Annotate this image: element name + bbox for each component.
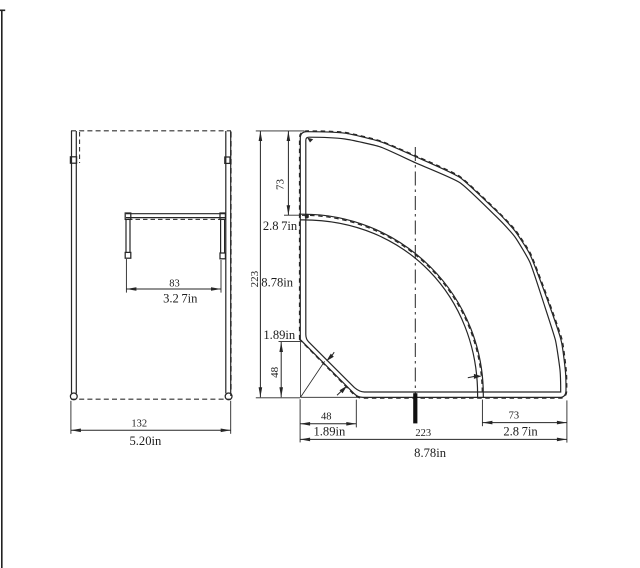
svg-text:48: 48 bbox=[269, 366, 281, 378]
svg-text:223: 223 bbox=[249, 270, 261, 287]
svg-text:223: 223 bbox=[415, 428, 431, 439]
svg-text:83: 83 bbox=[169, 279, 180, 290]
svg-text:48: 48 bbox=[321, 412, 332, 423]
svg-text:8.78in: 8.78in bbox=[414, 446, 447, 460]
svg-text:1.89in: 1.89in bbox=[313, 425, 346, 439]
svg-text:2.8 7in: 2.8 7in bbox=[503, 424, 538, 438]
svg-text:73: 73 bbox=[509, 411, 520, 422]
svg-text:5.20in: 5.20in bbox=[129, 434, 162, 448]
svg-text:2.8 7in: 2.8 7in bbox=[263, 219, 298, 233]
svg-text:8.78in: 8.78in bbox=[261, 275, 294, 289]
svg-text:132: 132 bbox=[131, 418, 147, 429]
svg-text:1.89in: 1.89in bbox=[263, 328, 296, 342]
svg-text:3.2 7in: 3.2 7in bbox=[163, 292, 198, 306]
svg-text:73: 73 bbox=[274, 179, 286, 191]
